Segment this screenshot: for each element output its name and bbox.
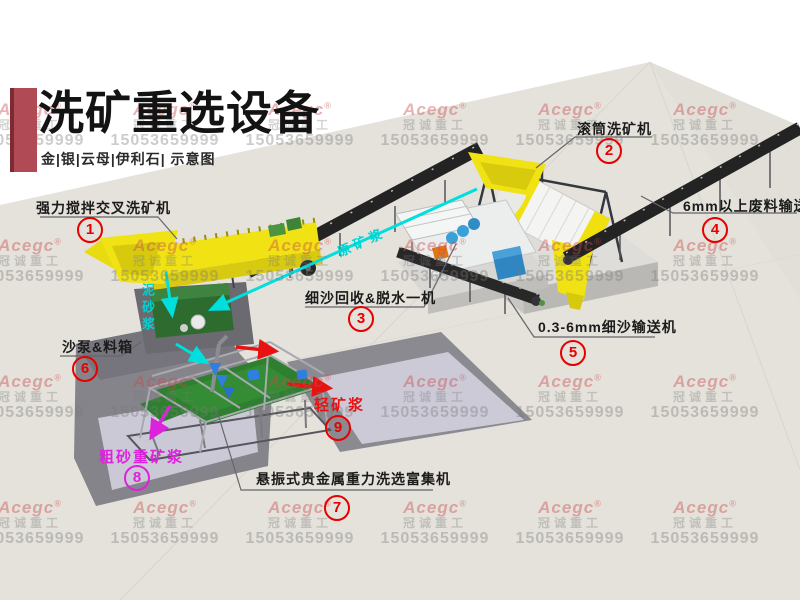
label-num-3: 3 [348,306,374,332]
page-title: 洗矿重选设备 [38,86,338,141]
label-num-7: 7 [324,495,350,521]
label-light-slurry: 轻矿浆 [314,394,365,415]
label-num-6: 6 [72,356,98,382]
label-fine-sand-conveyor: 0.3-6mm细沙输送机 [538,317,677,337]
label-num-8: 8 [124,465,150,491]
label-waste-conveyor: 6mm以上废料输送机 [683,196,800,216]
title-accent-bar [10,88,37,172]
label-fine-sand-recovery: 细沙回收&脱水一机 [305,288,436,308]
sand-pump-tank [150,283,234,338]
label-trommel-washer: 滚筒洗矿机 [577,119,652,139]
diagram-canvas: Acegc®冠诚重工15053659999Acegc®冠诚重工150536599… [0,0,800,600]
label-shaker-concentrator: 悬振式贵金属重力洗选富集机 [256,469,451,489]
label-num-1: 1 [77,217,103,243]
label-sand-pump-tank: 沙泵&料箱 [62,337,133,357]
page-subtitle: 金|银|云母|伊利石| 示意图 [41,149,216,169]
label-num-2: 2 [596,138,622,164]
label-num-9: 9 [325,415,351,441]
label-num-5: 5 [560,340,586,366]
mud-slurry-text: 泥砂浆 [138,283,157,334]
label-log-washer: 强力搅拌交叉洗矿机 [36,198,171,218]
label-coarse-heavy-slurry: 粗砂重矿浆 [99,446,184,467]
label-num-4: 4 [702,217,728,243]
floor-plane [0,62,800,600]
